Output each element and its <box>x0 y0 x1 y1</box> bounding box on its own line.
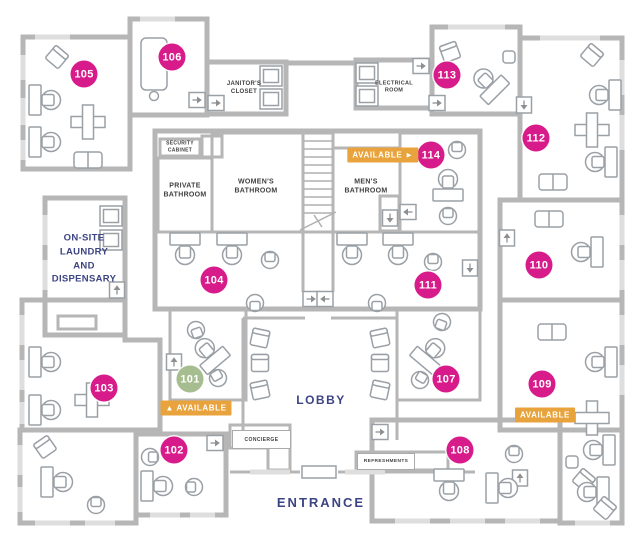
room-badge-101[interactable]: 101 <box>177 366 204 393</box>
label-laundry-dispensary: ON-SITE LAUNDRY AND DISPENSARY <box>52 231 116 286</box>
label-janitors-closet: JANITOR'S CLOSET <box>227 80 261 96</box>
available-tag-114[interactable]: AVAILABLE ► <box>347 148 418 163</box>
room-badge-113[interactable]: 113 <box>434 62 461 89</box>
room-badge-107[interactable]: 107 <box>433 366 460 393</box>
furniture <box>29 38 621 520</box>
room-badge-102[interactable]: 102 <box>161 437 188 464</box>
stairs <box>300 141 336 230</box>
room-badge-105[interactable]: 105 <box>71 61 98 88</box>
label-entrance: ENTRANCE <box>277 494 365 512</box>
room-badge-112[interactable]: 112 <box>523 125 550 152</box>
room-badge-106[interactable]: 106 <box>159 44 186 71</box>
room-badge-111[interactable]: 111 <box>415 272 442 299</box>
room-badge-110[interactable]: 110 <box>526 252 553 279</box>
label-refreshments: REFRESHMENTS <box>357 453 415 470</box>
available-tag-101[interactable]: ▲ AVAILABLE <box>160 401 231 416</box>
label-lobby: LOBBY <box>296 392 346 408</box>
label-concierge: CONCIERGE <box>232 430 291 449</box>
floorplan-canvas: 105 106 113 112 114 110 104 111 101 103 … <box>0 0 640 534</box>
available-tag-109[interactable]: AVAILABLE <box>515 408 575 423</box>
label-private-bathroom: PRIVATE BATHROOM <box>163 182 206 201</box>
room-badge-109[interactable]: 109 <box>529 371 556 398</box>
label-mens-bathroom: MEN'S BATHROOM <box>344 178 387 197</box>
room-badge-104[interactable]: 104 <box>201 267 228 294</box>
label-electrical-room: ELECTRICAL ROOM <box>375 81 413 96</box>
room-badge-103[interactable]: 103 <box>91 375 118 402</box>
room-badge-108[interactable]: 108 <box>447 437 474 464</box>
label-security-cabinet: SECURITY CABINET <box>166 140 194 154</box>
label-womens-bathroom: WOMEN'S BATHROOM <box>234 178 277 197</box>
room-badge-114[interactable]: 114 <box>418 142 445 169</box>
